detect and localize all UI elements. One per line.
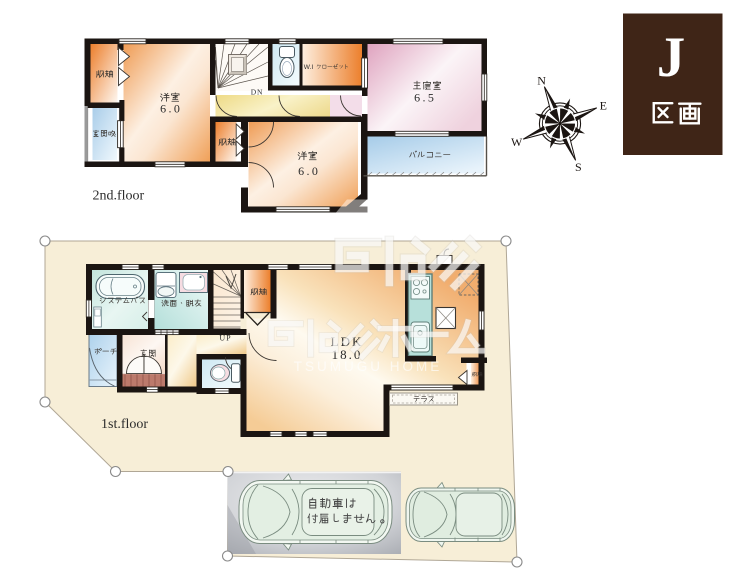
svg-text:TSUMUGU HOME: TSUMUGU HOME [294, 359, 443, 374]
svg-text:W: W [511, 135, 523, 149]
svg-text:DN: DN [251, 88, 263, 97]
svg-text:N: N [537, 73, 546, 87]
svg-text:6 . 0: 6 . 0 [298, 164, 318, 178]
svg-text:1st.floor: 1st.floor [101, 417, 148, 432]
svg-text:2nd.floor: 2nd.floor [93, 189, 145, 204]
svg-text:6 . 5: 6 . 5 [414, 91, 434, 105]
svg-text:E: E [600, 98, 607, 112]
svg-text:J: J [657, 26, 686, 89]
svg-text:UP: UP [219, 334, 231, 343]
svg-text:S: S [575, 160, 582, 174]
svg-text:W.I: W.I [304, 64, 314, 71]
svg-text:6 . 0: 6 . 0 [160, 102, 180, 116]
